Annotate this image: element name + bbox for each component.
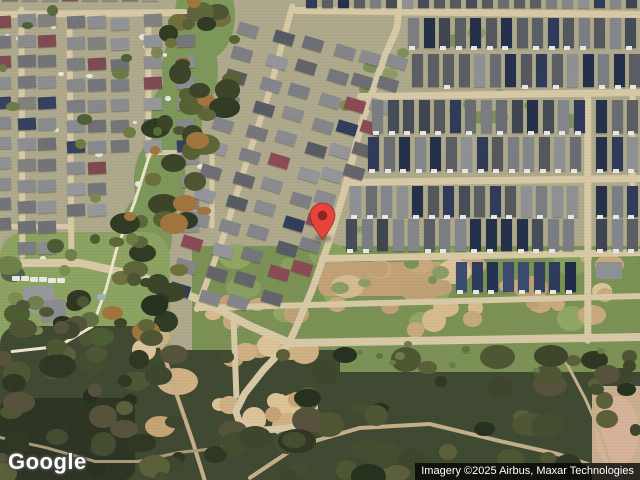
park-row-road (345, 174, 640, 185)
trailer-homes (532, 219, 543, 251)
scrub-woods (239, 426, 271, 448)
trailer-homes (517, 219, 528, 251)
suburb-houses (67, 204, 86, 217)
suburb-houses (0, 218, 11, 231)
suburb-houses (88, 99, 107, 112)
trailer-homes (578, 0, 589, 8)
street-trees (112, 68, 129, 80)
scrub-woods (474, 422, 495, 437)
suburb-houses (122, 0, 138, 1)
greenbelt-trees (182, 19, 195, 30)
building (596, 262, 622, 279)
scrub-woods (145, 366, 172, 385)
suburb-houses (67, 57, 86, 70)
suburb-houses (18, 179, 37, 192)
trailer-homes (424, 18, 435, 48)
porch (628, 169, 634, 173)
diagonal-houses (326, 68, 349, 85)
trailer-homes (521, 54, 532, 87)
suburb-houses (38, 221, 57, 234)
suburb-houses (144, 14, 163, 27)
porch (435, 131, 441, 135)
trailer-homes (548, 219, 559, 251)
google-logo[interactable]: Google (8, 449, 87, 475)
dirt-patches (422, 309, 446, 331)
porch (487, 249, 493, 253)
dirt-patches (436, 280, 452, 294)
porch (385, 169, 391, 173)
trailer-homes (412, 54, 423, 87)
scrub-woods (282, 432, 306, 449)
suburb-houses (144, 98, 163, 111)
trailer-homes (443, 54, 454, 87)
scrub-woods (351, 464, 386, 480)
trailer-homes (461, 137, 472, 171)
trailer-homes (594, 0, 605, 8)
diagonal-houses (268, 153, 291, 170)
trailer-homes (322, 0, 333, 8)
trailer-homes (579, 18, 590, 48)
trailer-homes (381, 186, 392, 217)
suburb-houses (88, 162, 107, 175)
scrub-woods (276, 349, 290, 361)
trailer-homes (439, 219, 450, 251)
trailer-homes (596, 186, 607, 217)
dirt-trail (94, 460, 139, 463)
trailer-homes (549, 262, 560, 292)
scrub-woods (280, 469, 297, 480)
diagonal-houses (230, 45, 253, 62)
scrub-woods (594, 365, 619, 384)
driveway-specks (165, 96, 171, 100)
trailer-homes (481, 100, 492, 133)
scrub-woods (351, 439, 377, 460)
trailer-homes (350, 186, 361, 217)
trailer-homes (456, 262, 467, 292)
street-trees (47, 5, 58, 16)
porch (400, 169, 406, 173)
suburb-houses (0, 16, 11, 29)
greenbelt-trees (165, 38, 177, 48)
suburb-houses (88, 78, 107, 91)
trailer-homes (501, 219, 512, 251)
suburb-houses (18, 200, 37, 213)
suburb-houses (38, 159, 57, 172)
suburb-houses (18, 138, 37, 151)
porch (471, 249, 477, 253)
trailer-homes (399, 137, 410, 171)
dirt-patches (578, 305, 606, 324)
trailer-homes (610, 18, 621, 48)
trailer-homes (408, 18, 419, 48)
trailer-homes (554, 137, 565, 171)
porch (599, 85, 605, 89)
greenbelt-trees (189, 83, 210, 98)
diagonal-houses (259, 77, 282, 94)
trailer-homes (627, 219, 638, 251)
diagonal-houses (321, 166, 344, 183)
suburb-houses (67, 78, 86, 91)
suburb-houses (111, 38, 130, 51)
porch (440, 249, 446, 253)
trailer-homes (625, 18, 636, 48)
dirt-patches (407, 322, 424, 338)
trailer-homes (428, 54, 439, 87)
trailer-homes (552, 54, 563, 87)
scrub-woods (219, 351, 234, 362)
trailer-homes (412, 186, 423, 217)
trailer-homes (627, 100, 638, 133)
trailer-homes (612, 219, 623, 251)
scrub-woods (566, 355, 581, 366)
porch (409, 46, 415, 50)
diagonal-houses (273, 29, 296, 46)
porch (466, 131, 472, 135)
porch (628, 131, 634, 135)
diagonal-houses (283, 216, 306, 233)
satellite-map[interactable]: Google Imagery ©2025 Airbus, Maxar Techn… (0, 0, 640, 480)
creek-woods (16, 300, 30, 311)
diagonal-houses (377, 75, 400, 92)
scrub-woods (39, 354, 77, 378)
suburb-houses (38, 34, 57, 47)
trailer-homes (570, 137, 581, 171)
trailer-homes (386, 0, 397, 8)
porch (420, 131, 426, 135)
porch (456, 46, 462, 50)
trailer-homes (472, 262, 483, 292)
suburb-houses (82, 0, 98, 1)
park-trees (59, 265, 70, 276)
porch (488, 290, 494, 294)
trailer-homes (477, 137, 488, 171)
trailer-homes (430, 137, 441, 171)
trailer-homes (517, 18, 528, 48)
porch (571, 169, 577, 173)
creek-woods (140, 330, 163, 346)
park-trees (65, 249, 77, 261)
greenbelt-trees (127, 273, 141, 286)
street-trees (153, 127, 162, 136)
diagonal-houses (297, 166, 320, 183)
street-trees (75, 139, 86, 149)
suburb-houses (88, 57, 107, 70)
trailer-homes (490, 186, 501, 217)
trailer-homes (552, 186, 563, 217)
suburb-houses (2, 0, 18, 1)
trailer-homes (450, 0, 461, 8)
suburb-houses (18, 117, 37, 130)
scrub-woods (534, 345, 569, 367)
trailer-homes (610, 0, 621, 8)
trailer-homes (306, 0, 317, 8)
greenbelt-trees (170, 264, 188, 276)
porch (597, 249, 603, 253)
diagonal-houses (181, 234, 204, 251)
porch (447, 169, 453, 173)
diagonal-houses (304, 142, 327, 159)
porch (613, 169, 619, 173)
porch (553, 85, 559, 89)
trailer-homes (408, 219, 419, 251)
construction-dirt (274, 394, 288, 406)
porch (369, 169, 375, 173)
scrub-woods (165, 416, 184, 428)
trailer-homes (370, 0, 381, 8)
trailer-homes (354, 0, 365, 8)
porch (440, 46, 446, 50)
diagonal-houses (328, 143, 351, 160)
park-trees (90, 234, 100, 244)
suburb-houses (67, 183, 86, 196)
trailer-homes (612, 100, 623, 133)
porch (613, 249, 619, 253)
porch (493, 169, 499, 173)
creek-woods (39, 307, 54, 317)
diagonal-houses (334, 43, 357, 60)
field-scrub (597, 348, 605, 354)
trailer-homes (598, 54, 609, 87)
trailer-homes (474, 186, 485, 217)
trailer-homes (534, 262, 545, 292)
trailer-homes (403, 100, 414, 133)
rv (48, 278, 56, 283)
trailer-homes (366, 186, 377, 217)
suburb-houses (38, 179, 57, 192)
scrub-woods (312, 360, 338, 385)
trailer-homes (455, 219, 466, 251)
scrub-woods (630, 424, 640, 435)
trailer-homes (563, 219, 574, 251)
driveway-specks (58, 72, 63, 76)
suburb-houses (142, 0, 158, 1)
suburb-houses (18, 96, 37, 109)
attribution-text: Imagery ©2025 Airbus, Maxar Technologies (421, 465, 634, 477)
trailer-homes (594, 18, 605, 48)
porch (615, 85, 621, 89)
suburb-houses (0, 36, 11, 49)
diagonal-houses (261, 176, 284, 193)
construction-dirt (235, 343, 256, 362)
trailer-homes (563, 18, 574, 48)
porch (626, 46, 632, 50)
trailer-homes (498, 0, 509, 8)
porch (555, 169, 561, 173)
suburb-houses (38, 96, 57, 109)
suburb-houses (67, 99, 86, 112)
scrub-woods (160, 345, 188, 364)
trailer-homes (470, 18, 481, 48)
trailer-homes (512, 100, 523, 133)
porch (497, 131, 503, 135)
greenbelt-trees (186, 132, 209, 149)
porch (540, 169, 546, 173)
porch (549, 249, 555, 253)
diagonal-houses (312, 117, 335, 134)
scrub-woods (487, 376, 512, 396)
diagonal-houses (274, 129, 297, 146)
trailer-homes (548, 18, 559, 48)
suburb-houses (62, 0, 78, 1)
field-scrub (449, 362, 456, 368)
suburb-houses (38, 200, 57, 213)
porch (347, 249, 353, 253)
trailer-homes (518, 262, 529, 292)
driveway-specks (86, 74, 92, 78)
trailer-homes (612, 186, 623, 217)
pool (97, 294, 106, 300)
trailer-homes (419, 100, 430, 133)
suburb-houses (111, 99, 130, 112)
suburb-houses (18, 55, 37, 68)
porch (425, 249, 431, 253)
greenbelt-trees (184, 172, 207, 191)
trailer-homes (486, 219, 497, 251)
trailer-homes (505, 54, 516, 87)
scrub-woods (116, 401, 132, 415)
park-trees (47, 239, 63, 253)
trailer-homes (536, 54, 547, 87)
trailer-homes (627, 186, 638, 217)
trailer-homes (418, 0, 429, 8)
suburb-houses (0, 117, 11, 130)
trailer-homes (612, 137, 623, 171)
suburb-houses (38, 138, 57, 151)
porch (389, 131, 395, 135)
porch (628, 249, 634, 253)
diagonal-houses (247, 223, 270, 240)
trailer-homes (439, 18, 450, 48)
greenbelt-trees (229, 35, 240, 45)
rv (57, 278, 65, 283)
scrub-woods (589, 384, 603, 395)
diagonal-houses (359, 49, 382, 66)
trailer-homes (388, 100, 399, 133)
trailer-homes (415, 137, 426, 171)
rv (30, 277, 38, 282)
field-scrub (357, 350, 363, 356)
suburb-houses (18, 221, 37, 234)
creek-woods (77, 296, 89, 307)
suburb-houses (22, 0, 38, 1)
scrub-woods (480, 345, 515, 369)
trailer-homes (465, 100, 476, 133)
trailer-homes (583, 54, 594, 87)
lawn-blobs (331, 282, 349, 294)
porch (544, 131, 550, 135)
porch (533, 249, 539, 253)
scrub-woods (596, 410, 618, 428)
trailer-homes (532, 18, 543, 48)
porch (524, 169, 530, 173)
location-pin-icon (309, 202, 336, 240)
porch (502, 46, 508, 50)
trailer-homes (523, 137, 534, 171)
greenbelt-trees (160, 213, 187, 234)
creek-woods (141, 295, 168, 316)
trailer-homes (450, 100, 461, 133)
trailer-homes (372, 100, 383, 133)
porch (509, 169, 515, 173)
rv (21, 276, 29, 281)
trailer-homes (377, 219, 388, 251)
trailer-homes (567, 54, 578, 87)
trailer-homes (402, 0, 413, 8)
trailer-homes (539, 137, 550, 171)
suburb-houses (18, 34, 37, 47)
suburb-houses (38, 117, 57, 130)
trailer-homes (543, 100, 554, 133)
trailer-homes (368, 137, 379, 171)
trailer-homes (546, 0, 557, 8)
greenbelt-trees (169, 63, 191, 84)
driveway-specks (133, 121, 138, 124)
trailer-homes (574, 100, 585, 133)
trailer-homes (362, 219, 373, 251)
suburb-houses (177, 35, 196, 48)
trailer-homes (397, 186, 408, 217)
porch (457, 290, 463, 294)
dirt-patches (463, 311, 482, 326)
diagonal-houses (302, 35, 325, 52)
trailer-homes (486, 18, 497, 48)
trailer-homes (428, 186, 439, 217)
creek-woods (54, 321, 69, 334)
trailer-homes (496, 100, 507, 133)
porch (363, 249, 369, 253)
suburb-houses (88, 204, 107, 217)
trailer-homes (626, 0, 637, 8)
scrub-woods (2, 374, 26, 392)
suburb-houses (38, 55, 57, 68)
trailer-homes (346, 219, 357, 251)
porch (550, 290, 556, 294)
trailer-homes (455, 18, 466, 48)
porch (431, 169, 437, 173)
porch (566, 290, 572, 294)
diagonal-houses (351, 73, 374, 90)
diagonal-houses (295, 59, 318, 76)
scrub-woods (88, 383, 102, 397)
porch (473, 290, 479, 294)
suburb-houses (144, 77, 163, 90)
trailer-homes (446, 137, 457, 171)
diagonal-houses (288, 82, 311, 99)
suburb-houses (88, 141, 107, 154)
porch (630, 85, 636, 89)
porch (533, 46, 539, 50)
suburb-houses (111, 140, 130, 153)
trailer-homes (459, 54, 470, 87)
suburb-houses (42, 0, 58, 1)
scrub-woods (46, 429, 67, 445)
cross-street (584, 89, 591, 343)
street-trees (90, 193, 101, 203)
attribution-bar: Imagery ©2025 Airbus, Maxar Technologies (415, 463, 640, 480)
trailer-homes (482, 0, 493, 8)
scrub-woods (155, 472, 168, 480)
porch (613, 131, 619, 135)
diagonal-houses (237, 21, 260, 38)
suburb-houses (0, 177, 11, 190)
trailer-homes (424, 219, 435, 251)
trailer-homes (443, 186, 454, 217)
trailer-homes (530, 0, 541, 8)
trailer-homes (474, 54, 485, 87)
scrub-woods (391, 347, 421, 372)
porch (564, 46, 570, 50)
suburb-houses (67, 36, 86, 49)
